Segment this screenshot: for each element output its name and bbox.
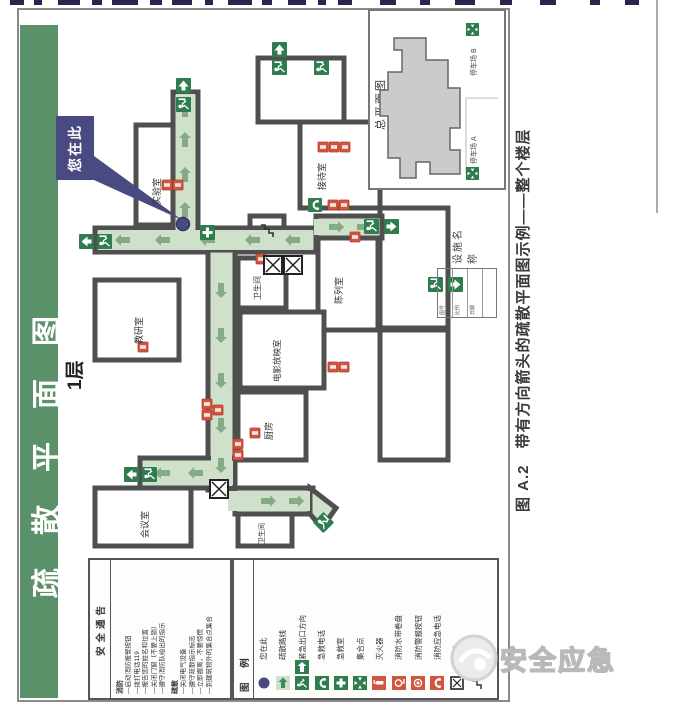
you-are-here-dot-icon bbox=[257, 660, 271, 690]
emergency-exit-direction-icon bbox=[295, 660, 309, 690]
watermark-text: 安全应急 bbox=[500, 639, 616, 678]
fire-hose-reel-icon bbox=[392, 660, 406, 690]
assembly-point-icon bbox=[466, 167, 479, 180]
evacuation-route-icon bbox=[276, 660, 290, 690]
page-edge-line bbox=[656, 0, 658, 213]
site-plan-inset: 总平面图 停车场 A 停车场 B bbox=[368, 9, 506, 190]
room-label: 陈列室 bbox=[333, 277, 344, 304]
room-label: 卫生间 bbox=[257, 523, 266, 544]
you-are-here-banner: 您在此 bbox=[56, 116, 94, 180]
exit-man-icon bbox=[176, 97, 191, 112]
fire-alarm-button-icon bbox=[411, 660, 425, 690]
assembly-point-icon bbox=[353, 660, 367, 690]
watermark: 安全应急 bbox=[448, 632, 616, 684]
legend-title: 图 例 bbox=[234, 560, 254, 698]
elevator-icon bbox=[284, 256, 302, 274]
parking-a-label: 停车场 A bbox=[469, 136, 478, 164]
site-plan: 总平面图 停车场 A 停车场 B bbox=[370, 15, 500, 188]
watermark-logo-icon bbox=[448, 632, 500, 684]
room-exhibition bbox=[318, 234, 378, 330]
assembly-point-icon bbox=[466, 23, 479, 36]
safety-notice-box: 安全通告 消防 —启动消防报警按钮 —拨打电话119 —报告您的姓名和位置 —关… bbox=[88, 558, 232, 700]
rotated-drawing: 疏散平面图 1层 bbox=[0, 0, 678, 708]
room-lab bbox=[136, 125, 175, 225]
room-cinema bbox=[240, 312, 324, 388]
fire-emergency-phone-icon bbox=[430, 660, 444, 690]
you-are-here-dot bbox=[177, 218, 190, 231]
room-label: 厨房 bbox=[263, 422, 274, 440]
notice-fire-heading: 消防 bbox=[115, 564, 125, 694]
room-label: 接待室 bbox=[316, 163, 327, 190]
facility-block: 图号 比例 日期 设施名称 bbox=[437, 218, 499, 318]
first-aid-phone-icon bbox=[315, 660, 329, 690]
title-block: 图号 比例 日期 bbox=[437, 268, 497, 318]
room-south-1 bbox=[380, 330, 448, 460]
page-title: 疏散平面图 bbox=[22, 283, 66, 598]
parking-b-label: 停车场 B bbox=[469, 48, 478, 76]
title-banner: 疏散平面图 bbox=[20, 25, 58, 698]
scanned-evacuation-plan-page: 疏散平面图 1层 bbox=[0, 0, 678, 708]
room-label: 教研室 bbox=[133, 317, 144, 344]
elevator-icon bbox=[264, 256, 282, 274]
room-wing bbox=[258, 58, 344, 122]
emergency-phone-icon bbox=[308, 198, 322, 212]
figure-caption: 图 A.2 带有方向箭头的疏散平面图示例——整个楼层 bbox=[512, 132, 533, 512]
facility-name-label: 设施名称 bbox=[449, 218, 479, 264]
first-aid-icon bbox=[200, 225, 215, 240]
exit-arrow-icon bbox=[176, 78, 191, 93]
notice-evac-heading: 疏散 bbox=[170, 564, 180, 694]
room-label: 电影放映室 bbox=[272, 339, 282, 382]
room-label: 会议室 bbox=[139, 511, 150, 538]
first-aid-room-icon bbox=[334, 660, 348, 690]
room-label: 实验室 bbox=[151, 178, 162, 205]
notice-title: 安全通告 bbox=[90, 560, 111, 698]
room-label: 卫生间 bbox=[252, 276, 262, 300]
cropped-text-fragments bbox=[0, 0, 678, 8]
building-footprint bbox=[380, 38, 460, 178]
elevator-icon bbox=[210, 480, 228, 498]
fire-extinguisher-icon bbox=[372, 660, 386, 690]
